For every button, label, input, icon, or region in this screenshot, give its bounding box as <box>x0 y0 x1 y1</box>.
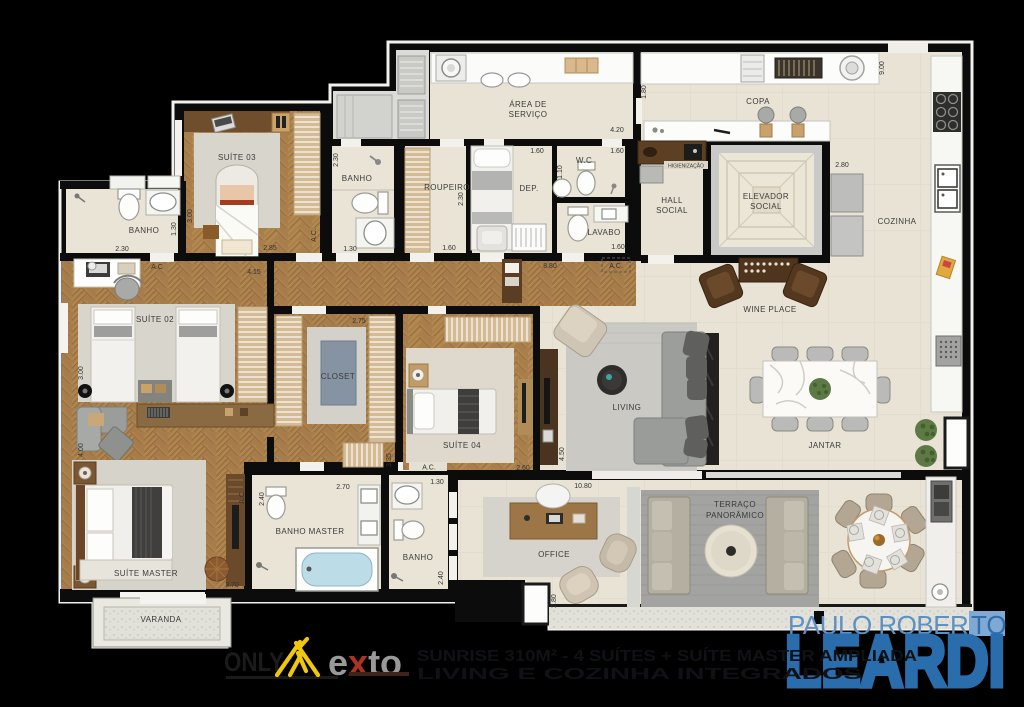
svg-text:A.C.: A.C. <box>311 228 318 242</box>
svg-text:A.C: A.C <box>151 264 163 271</box>
svg-text:exto: exto <box>328 642 402 683</box>
svg-text:SOCIAL: SOCIAL <box>656 206 688 215</box>
svg-text:1.30: 1.30 <box>343 246 357 253</box>
svg-text:ÁREA DE: ÁREA DE <box>509 100 546 109</box>
svg-text:A.C.: A.C. <box>609 263 623 270</box>
svg-text:3.35: 3.35 <box>386 453 393 467</box>
svg-text:2.30: 2.30 <box>333 153 340 167</box>
svg-text:SOCIAL: SOCIAL <box>750 202 782 211</box>
svg-text:3.00: 3.00 <box>78 366 85 380</box>
svg-text:BANHO: BANHO <box>129 226 159 235</box>
svg-text:8.80: 8.80 <box>543 263 557 270</box>
svg-text:SUÍTE MASTER: SUÍTE MASTER <box>114 569 178 578</box>
svg-text:3.00: 3.00 <box>187 209 194 223</box>
svg-text:SERVIÇO: SERVIÇO <box>509 110 548 119</box>
svg-text:1.60: 1.60 <box>442 245 456 252</box>
svg-text:OFFICE: OFFICE <box>538 550 570 559</box>
svg-text:1.30: 1.30 <box>430 479 444 486</box>
svg-text:2.40: 2.40 <box>259 492 266 506</box>
svg-text:JANTAR: JANTAR <box>809 441 842 450</box>
svg-text:HALL: HALL <box>661 196 683 205</box>
svg-text:2.80: 2.80 <box>551 594 558 608</box>
svg-text:1.60: 1.60 <box>610 148 624 155</box>
svg-text:LAVABO: LAVABO <box>587 228 620 237</box>
svg-text:W.C: W.C <box>576 156 592 165</box>
svg-text:1.60: 1.60 <box>611 244 625 251</box>
svg-text:4.15: 4.15 <box>247 269 261 276</box>
svg-text:BANHO: BANHO <box>342 174 372 183</box>
svg-text:1.80: 1.80 <box>641 85 648 99</box>
svg-text:VARANDA: VARANDA <box>141 615 182 624</box>
svg-text:COPA: COPA <box>746 97 770 106</box>
svg-text:4.20: 4.20 <box>610 127 624 134</box>
svg-text:DEP.: DEP. <box>519 184 538 193</box>
svg-text:BANHO MASTER: BANHO MASTER <box>276 527 345 536</box>
svg-text:3.70: 3.70 <box>225 582 239 589</box>
svg-text:ELEVADOR: ELEVADOR <box>743 192 789 201</box>
svg-text:SUÍTE 02: SUÍTE 02 <box>136 315 174 324</box>
svg-text:TERRAÇO: TERRAÇO <box>714 500 756 509</box>
svg-text:SUÍTE 04: SUÍTE 04 <box>443 441 481 450</box>
svg-text:A.C.: A.C. <box>422 465 436 472</box>
svg-text:SUÍTE 03: SUÍTE 03 <box>218 153 256 162</box>
svg-text:1.60: 1.60 <box>530 148 544 155</box>
svg-text:A.C.: A.C. <box>239 490 246 504</box>
svg-text:CLOSET: CLOSET <box>321 372 355 381</box>
svg-text:2.75: 2.75 <box>352 318 366 325</box>
svg-text:COZINHA: COZINHA <box>878 217 917 226</box>
svg-text:ONLY: ONLY <box>224 647 284 677</box>
svg-text:WINE PLACE: WINE PLACE <box>743 305 796 314</box>
svg-text:BANHO: BANHO <box>403 553 433 562</box>
svg-text:2.30: 2.30 <box>115 246 129 253</box>
svg-text:PANORÂMICO: PANORÂMICO <box>706 511 764 520</box>
svg-text:HIGIENIZAÇÃO: HIGIENIZAÇÃO <box>668 163 704 170</box>
svg-text:4.00: 4.00 <box>78 443 85 457</box>
svg-text:1.30: 1.30 <box>171 222 178 236</box>
svg-text:2.70: 2.70 <box>336 484 350 491</box>
svg-text:2.85: 2.85 <box>263 245 277 252</box>
svg-text:2.60: 2.60 <box>516 465 530 472</box>
svg-text:2.40: 2.40 <box>438 571 445 585</box>
svg-text:SUNRISE 310M² - 4 SUÍTES + SUÍ: SUNRISE 310M² - 4 SUÍTES + SUÍTE MASTER … <box>417 646 918 665</box>
svg-text:9.00: 9.00 <box>879 61 886 75</box>
svg-text:1.10: 1.10 <box>557 165 564 179</box>
svg-text:LIVING: LIVING <box>613 403 642 412</box>
svg-text:ROUPEIRO: ROUPEIRO <box>424 183 470 192</box>
svg-text:2.80: 2.80 <box>835 162 849 169</box>
svg-text:4.50: 4.50 <box>559 447 566 461</box>
svg-text:2.30: 2.30 <box>458 192 465 206</box>
svg-text:LIVING E COZINHA INTEGRADOS: LIVING E COZINHA INTEGRADOS <box>417 666 863 683</box>
svg-text:10.80: 10.80 <box>574 483 592 490</box>
